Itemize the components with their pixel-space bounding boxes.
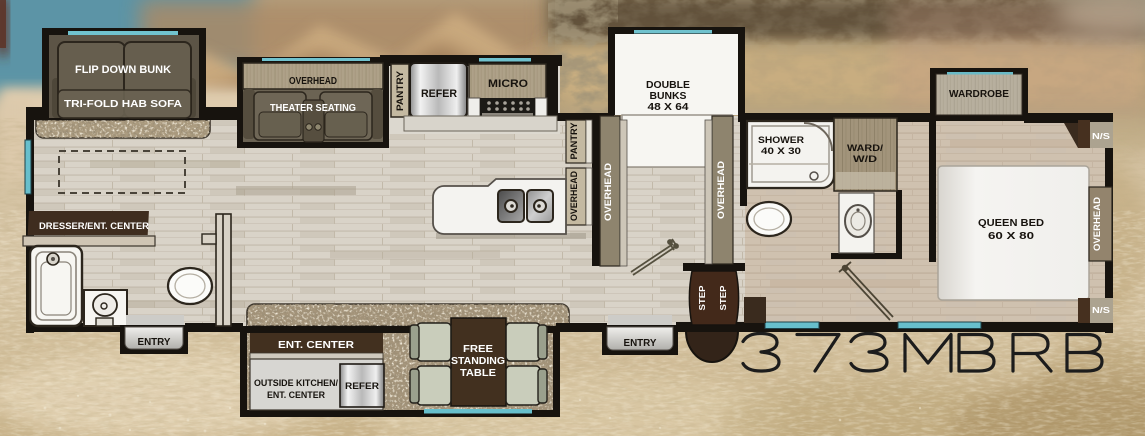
svg-text:OVERHEAD: OVERHEAD	[603, 163, 614, 221]
svg-text:ENTRY: ENTRY	[138, 337, 171, 348]
svg-text:OVERHEAD: OVERHEAD	[716, 161, 727, 219]
svg-text:OVERHEAD: OVERHEAD	[289, 76, 337, 87]
svg-text:OVERHEAD: OVERHEAD	[1092, 196, 1102, 251]
svg-text:STANDING: STANDING	[451, 356, 505, 367]
svg-text:REFER: REFER	[421, 88, 457, 100]
svg-text:STEP: STEP	[697, 285, 707, 310]
svg-text:W/D: W/D	[853, 154, 877, 165]
svg-text:MICRO: MICRO	[488, 78, 528, 90]
svg-text:WARDROBE: WARDROBE	[949, 89, 1009, 100]
svg-text:REFER: REFER	[345, 381, 379, 392]
svg-text:ENT. CENTER: ENT. CENTER	[278, 339, 354, 351]
svg-text:WARD/: WARD/	[847, 143, 883, 154]
svg-text:ENTRY: ENTRY	[624, 338, 657, 349]
svg-text:OVERHEAD: OVERHEAD	[569, 171, 579, 221]
svg-text:N/S: N/S	[1092, 131, 1110, 141]
svg-text:ENT. CENTER: ENT. CENTER	[267, 390, 325, 401]
svg-text:OUTSIDE KITCHEN/: OUTSIDE KITCHEN/	[254, 378, 338, 389]
svg-text:SHOWER: SHOWER	[758, 135, 804, 146]
svg-text:DRESSER/ENT. CENTER: DRESSER/ENT. CENTER	[39, 221, 150, 231]
svg-text:60 X 80: 60 X 80	[988, 230, 1034, 242]
svg-text:PANTRY: PANTRY	[395, 70, 406, 111]
svg-text:PANTRY: PANTRY	[569, 123, 579, 160]
svg-text:FLIP DOWN BUNK: FLIP DOWN BUNK	[75, 64, 171, 76]
svg-text:BUNKS: BUNKS	[650, 91, 687, 102]
svg-text:STEP: STEP	[718, 285, 728, 310]
svg-text:DOUBLE: DOUBLE	[646, 80, 690, 91]
svg-text:QUEEN BED: QUEEN BED	[978, 217, 1044, 229]
svg-text:40 X 30: 40 X 30	[761, 146, 801, 157]
svg-text:TABLE: TABLE	[460, 368, 496, 379]
svg-text:TRI-FOLD HAB SOFA: TRI-FOLD HAB SOFA	[64, 98, 182, 110]
svg-text:FREE: FREE	[463, 344, 493, 355]
svg-text:N/S: N/S	[1092, 305, 1110, 315]
svg-text:48 X 64: 48 X 64	[648, 102, 690, 113]
svg-text:THEATER SEATING: THEATER SEATING	[270, 102, 356, 114]
